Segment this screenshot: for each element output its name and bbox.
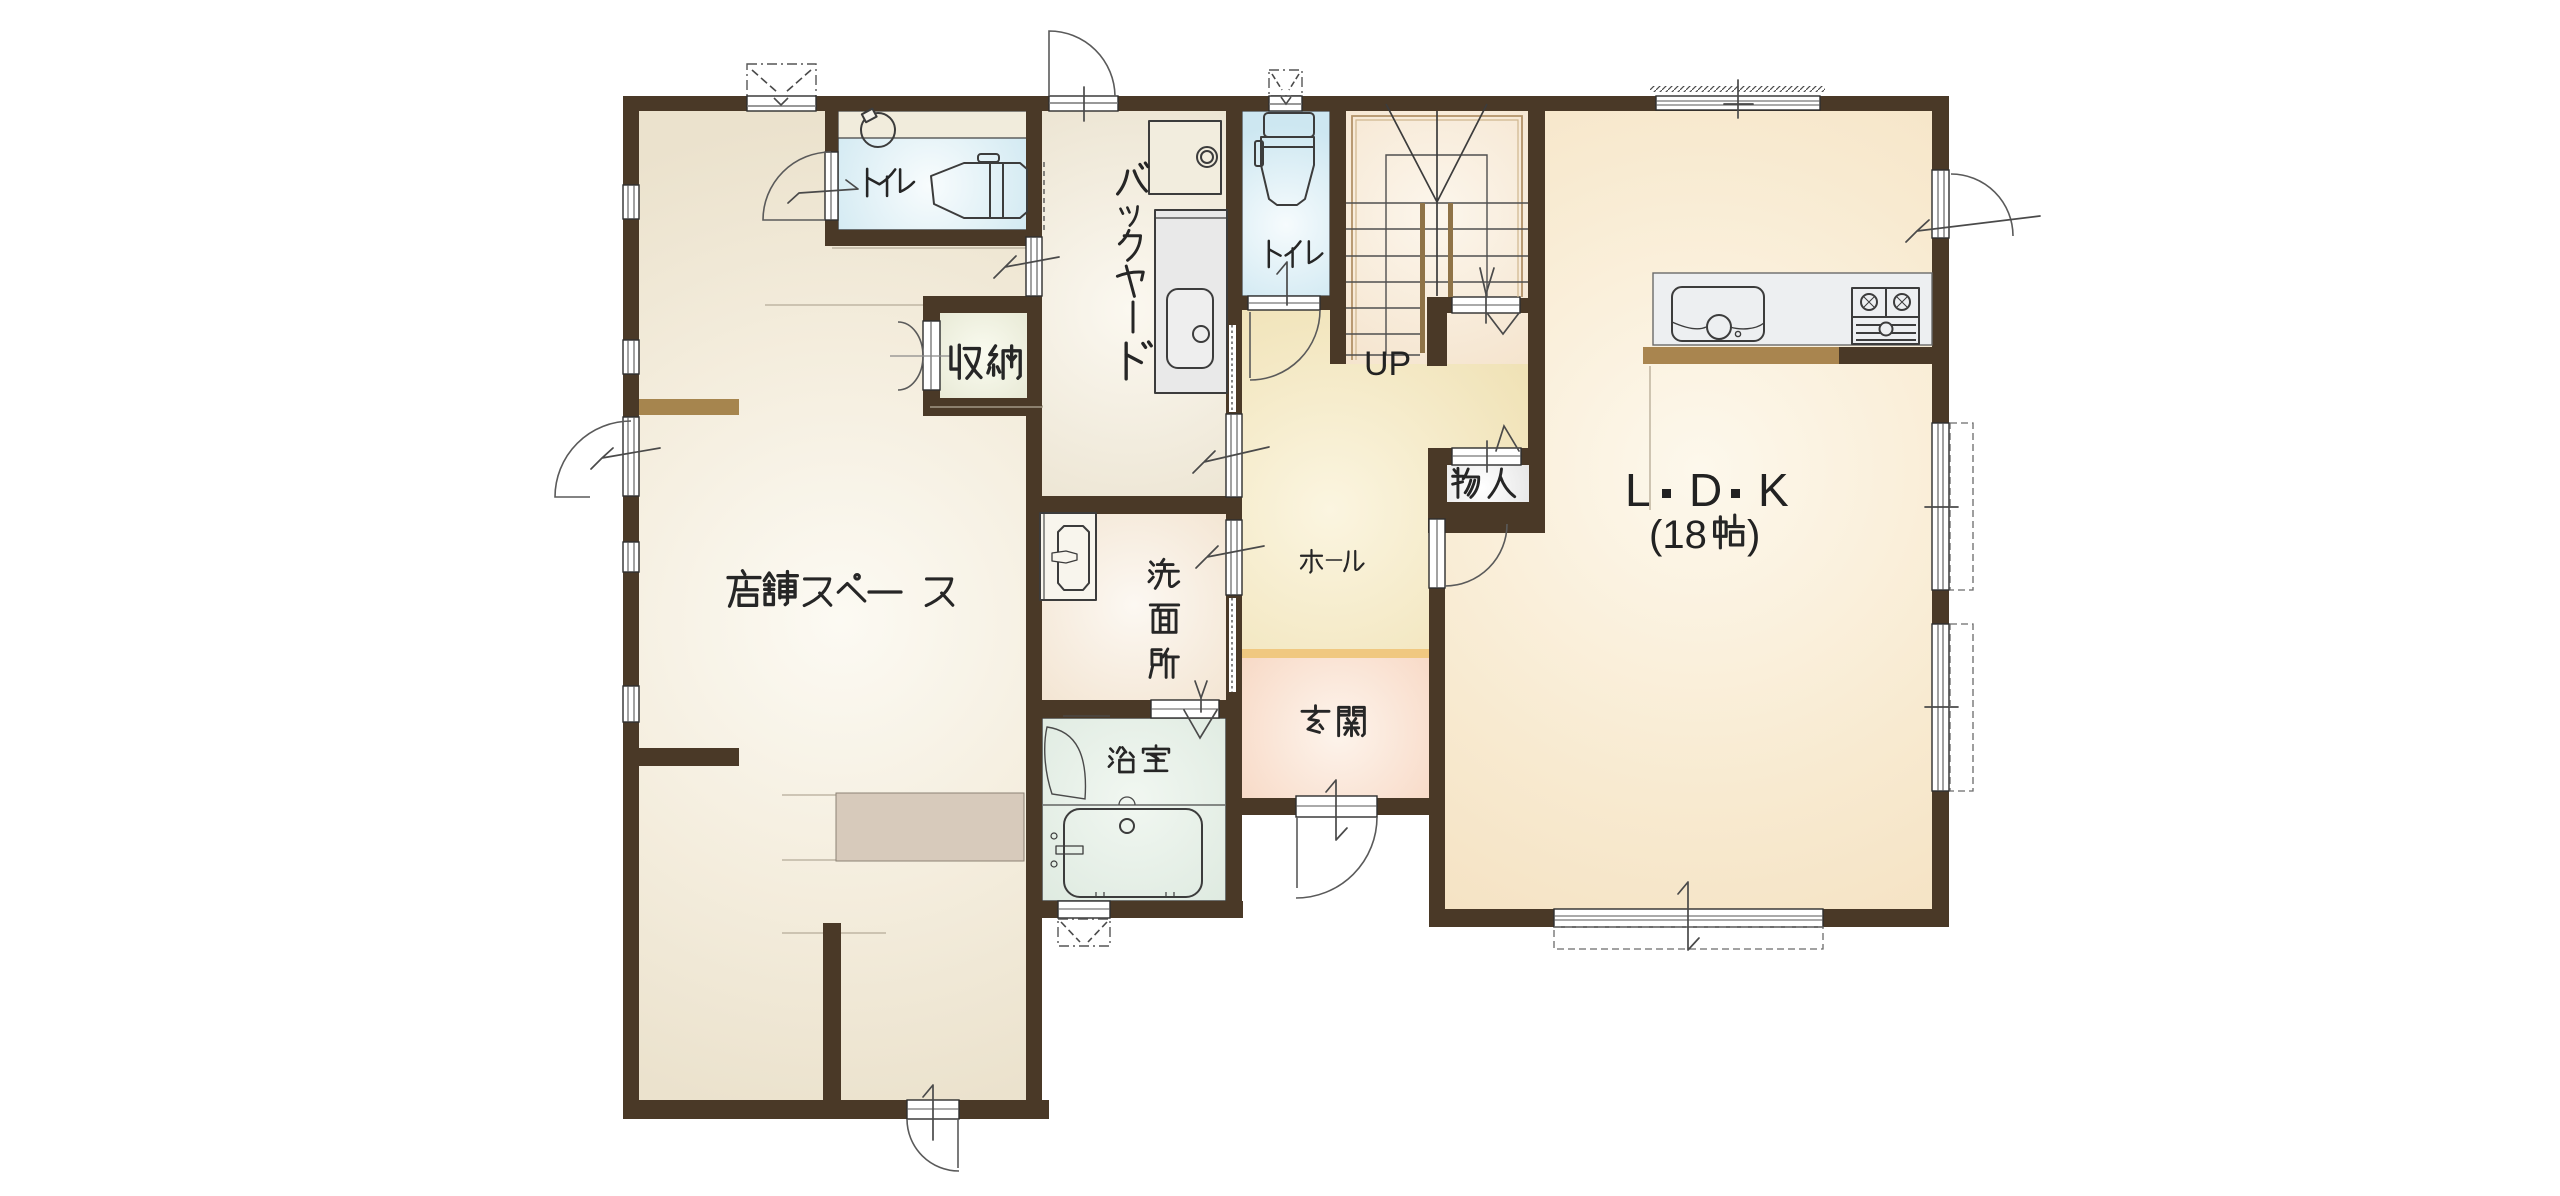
- svg-text:D: D: [1689, 464, 1722, 516]
- svg-text:): ): [1747, 513, 1760, 557]
- svg-text:L: L: [1625, 464, 1651, 516]
- svg-text:K: K: [1758, 464, 1789, 516]
- svg-text:UP: UP: [1364, 345, 1411, 383]
- svg-text:(18: (18: [1649, 513, 1707, 557]
